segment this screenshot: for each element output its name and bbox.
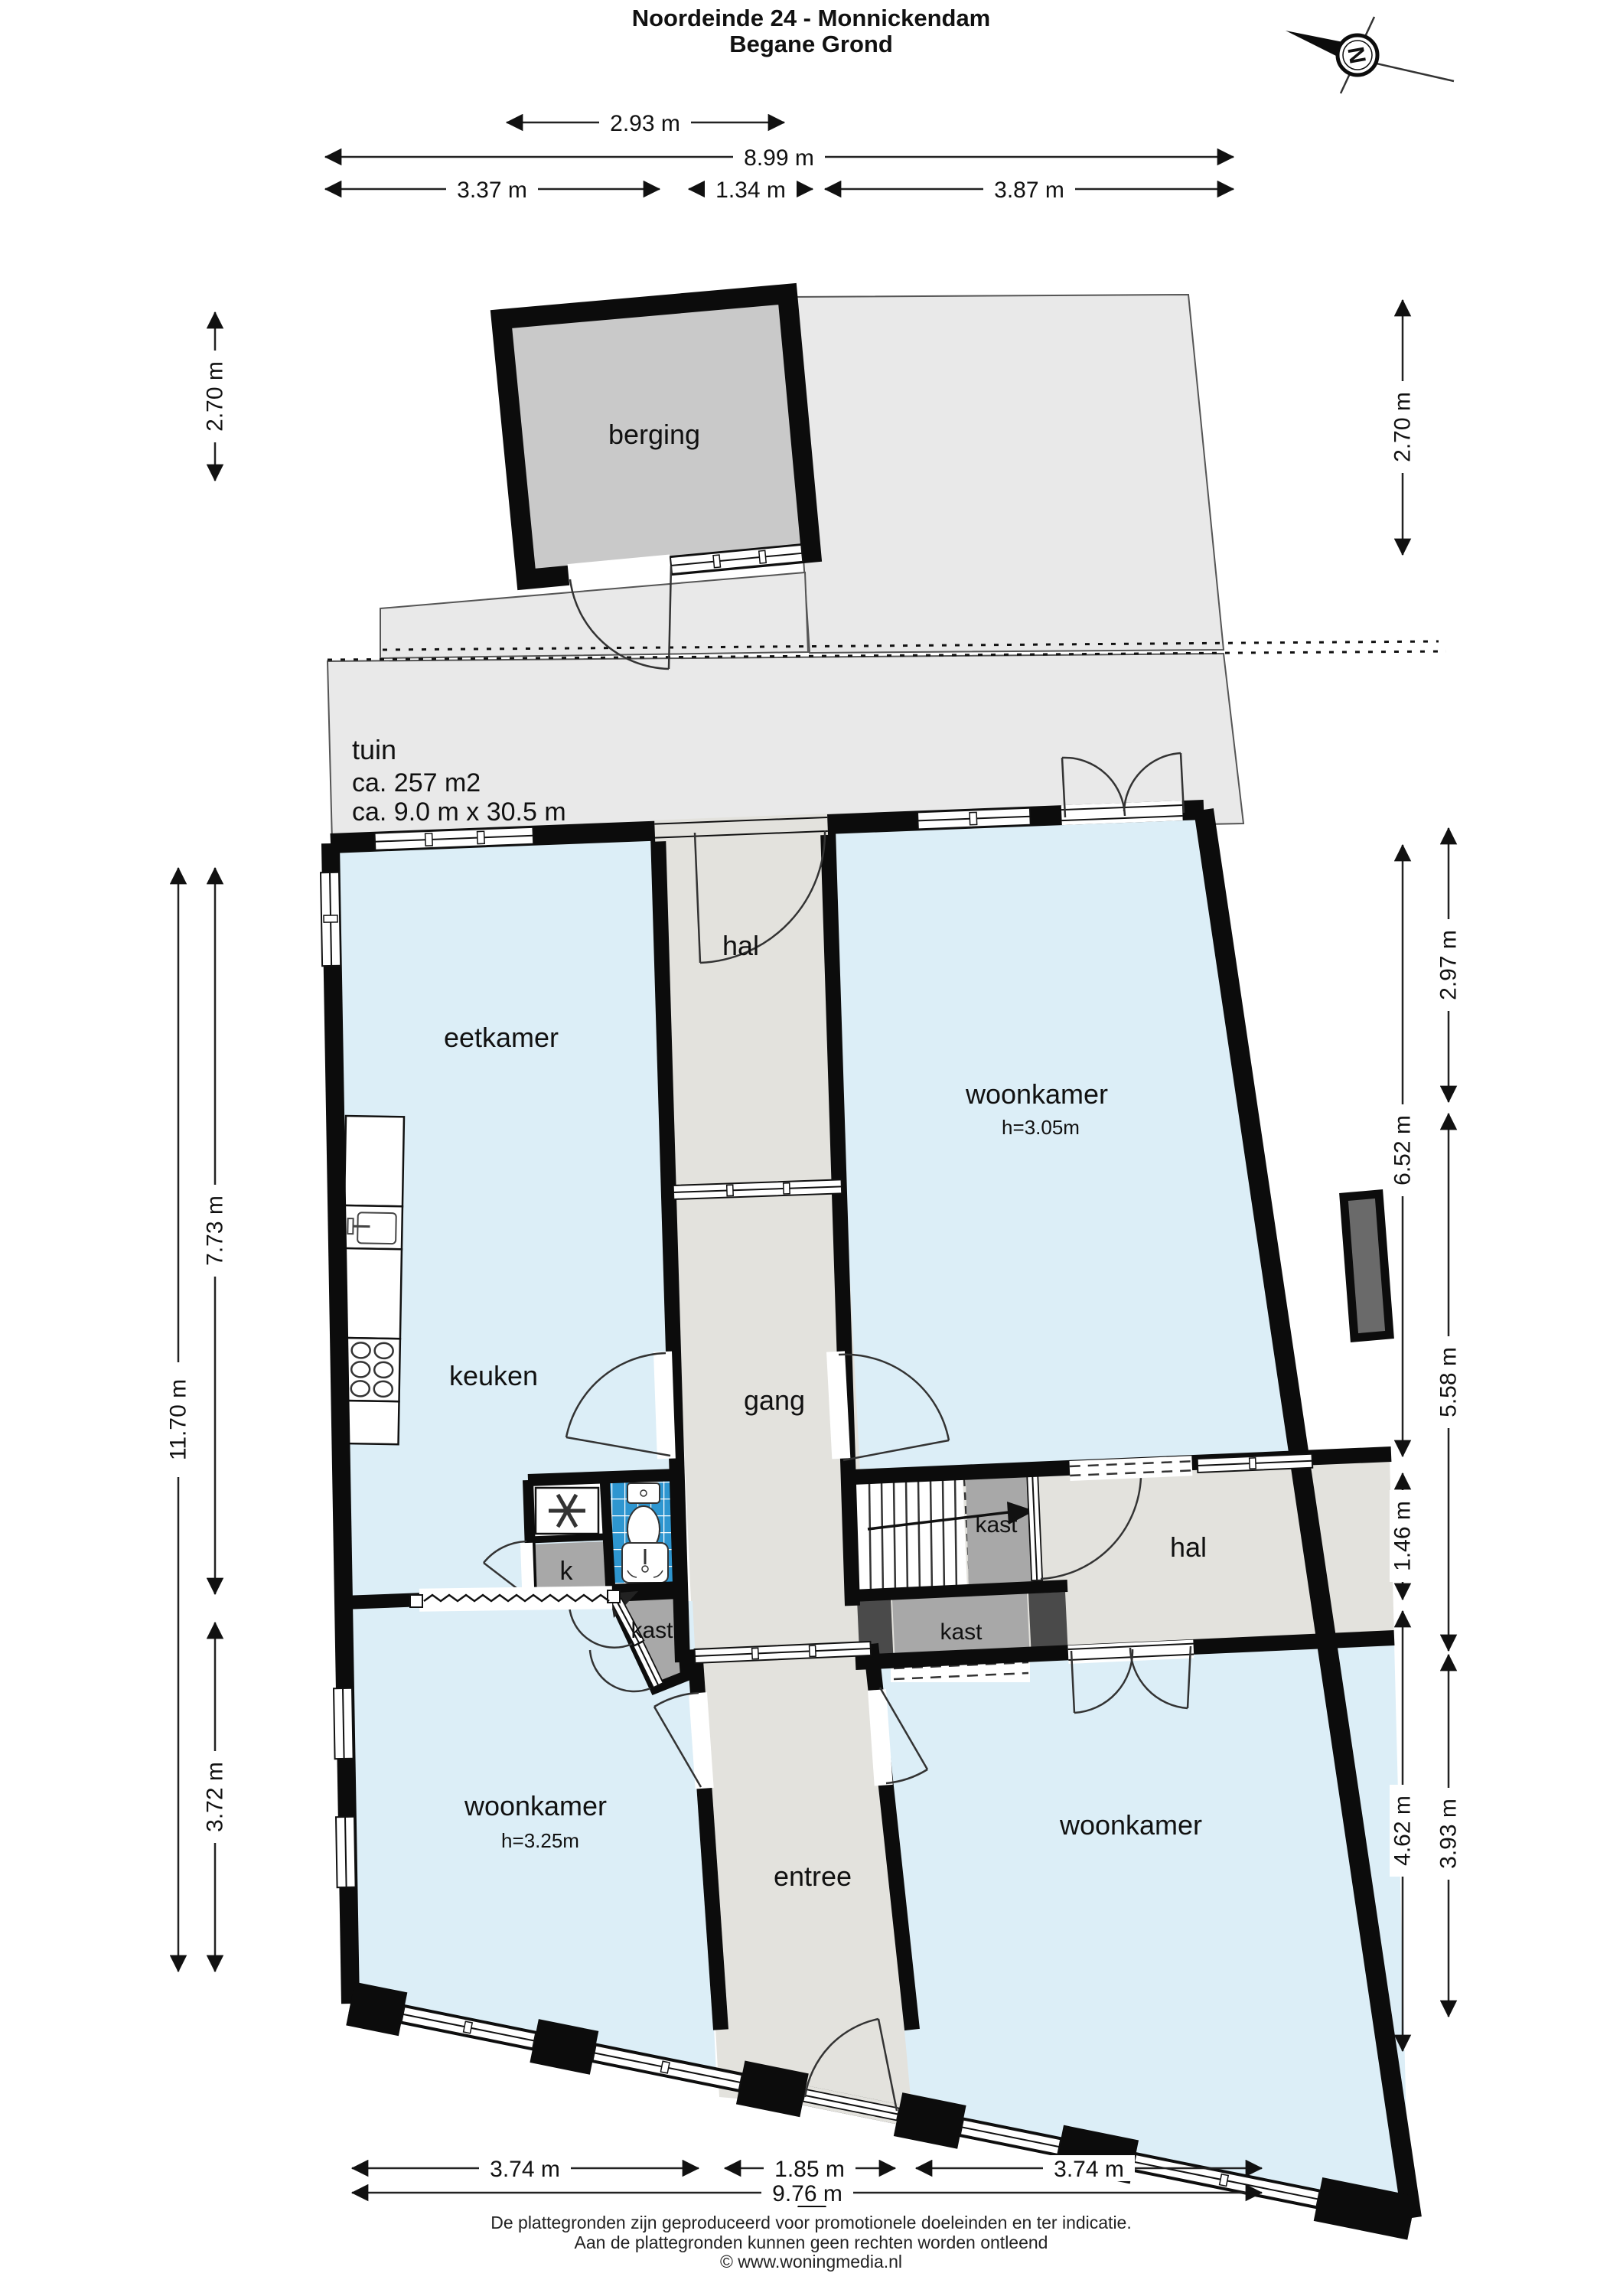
room-label-eetkamer: eetkamer — [444, 1022, 559, 1053]
dimension-label: 1.46 m — [1390, 1501, 1416, 1571]
dimension-label: 1.34 m — [715, 178, 786, 203]
dimension-label: 2.70 m — [1390, 392, 1416, 462]
floorplan-page: Noordeinde 24 - Monnickendam Begane Gron… — [0, 0, 1623, 2296]
dimension-label: 8.99 m — [744, 145, 814, 171]
dimension-label: 4.62 m — [1390, 1795, 1416, 1866]
dimension-label: 3.93 m — [1436, 1799, 1462, 1869]
footer-copyright: © www.woningmedia.nl — [720, 2252, 902, 2272]
room-label-keuken: keuken — [449, 1360, 538, 1391]
dimension-label: 3.74 m — [490, 2157, 560, 2182]
dimension-label: 3.37 m — [457, 178, 527, 203]
dimension-label: 1.85 m — [774, 2157, 845, 2182]
floorplan-drawing: Noordeinde 24 - Monnickendam Begane Gron… — [0, 0, 1623, 2296]
height-label-woonkamer-boven: h=3.05m — [1002, 1116, 1080, 1139]
dimension-label: 9.76 m — [772, 2181, 842, 2206]
chimney — [1344, 1194, 1390, 1338]
dimension-label: 7.73 m — [203, 1195, 228, 1266]
room-label-tuin: tuin — [352, 734, 396, 765]
footer-disclaimer-1: De plattegronden zijn geproduceerd voor … — [490, 2213, 1132, 2232]
dimension-label: 3.72 m — [203, 1762, 228, 1832]
page-title: Noordeinde 24 - Monnickendam — [632, 5, 991, 31]
room-label-hal-rechts: hal — [1170, 1531, 1207, 1563]
room-label-woonkamer-links: woonkamer — [464, 1790, 607, 1821]
room-label-berging: berging — [608, 419, 700, 450]
compass-north-icon: N — [1286, 17, 1454, 93]
page-subtitle: Begane Grond — [729, 31, 893, 57]
washbasin-icon — [622, 1543, 668, 1583]
staircase — [855, 1477, 970, 1596]
dimension-label: 11.70 m — [166, 1379, 191, 1460]
dimension-label: 2.97 m — [1436, 930, 1462, 1000]
tuin-size-label: ca. 9.0 m x 30.5 m — [352, 797, 566, 827]
height-label-woonkamer-links: h=3.25m — [501, 1829, 579, 1852]
room-label-woonkamer-rechts: woonkamer — [1059, 1809, 1202, 1841]
dimension-label: 3.74 m — [1054, 2157, 1124, 2182]
room-label-hal-boven: hal — [722, 930, 759, 961]
bathroom-block — [528, 1475, 683, 1598]
footer-disclaimer-2: Aan de plattegronden kunnen geen rechten… — [575, 2232, 1048, 2252]
tuin-area-label: ca. 257 m2 — [352, 768, 481, 797]
room-label-kast-gang: kast — [940, 1619, 983, 1645]
room-label-woonkamer-boven: woonkamer — [965, 1078, 1108, 1110]
window-woonkamer-top — [917, 808, 1031, 830]
garden-parcel — [328, 295, 1446, 842]
kitchen-counter — [341, 1116, 404, 1444]
dimension-label: 2.93 m — [610, 111, 680, 136]
dimension-label: 3.87 m — [994, 178, 1064, 203]
dimension-label: 5.58 m — [1436, 1347, 1462, 1417]
toilet-icon — [627, 1483, 660, 1552]
room-label-entree: entree — [774, 1861, 852, 1892]
room-label-kast-trap: kast — [975, 1512, 1018, 1538]
room-label-k: k — [560, 1557, 574, 1586]
dimension-label: 2.70 m — [203, 361, 228, 432]
room-label-kast-wedge: kast — [631, 1618, 673, 1643]
dimension-label: 6.52 m — [1390, 1115, 1416, 1186]
room-label-gang: gang — [744, 1384, 805, 1416]
